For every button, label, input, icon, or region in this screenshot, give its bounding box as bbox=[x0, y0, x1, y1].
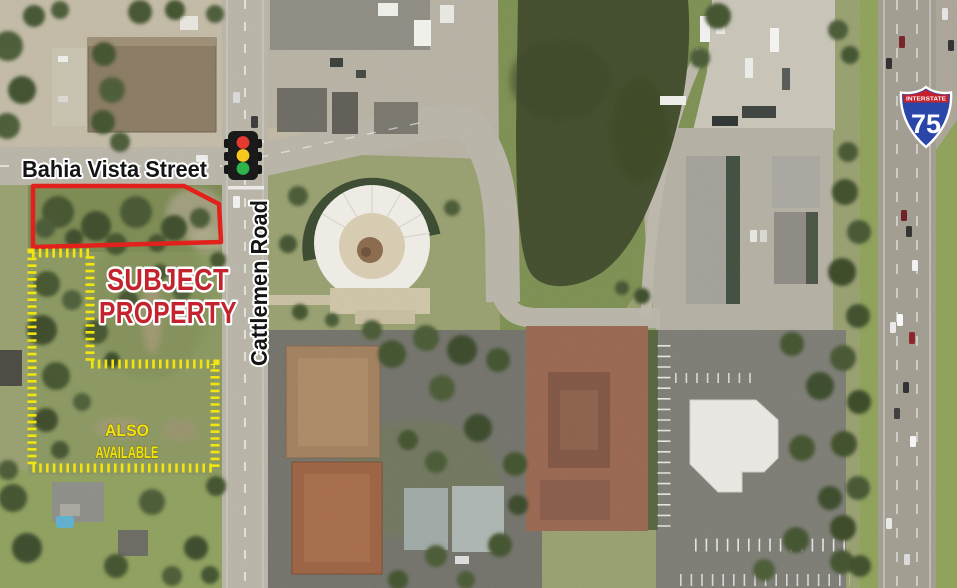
interstate-route-number: 75 bbox=[911, 109, 941, 139]
subject-property-label-line2: PROPERTY bbox=[99, 295, 237, 330]
also-available-label-line1: ALSO bbox=[105, 421, 149, 440]
green-light bbox=[237, 162, 250, 175]
interstate-banner-text: INTERSTATE bbox=[906, 96, 946, 102]
subject-property-label: SUBJECT PROPERTY bbox=[99, 262, 237, 330]
subject-property-label-line1: SUBJECT bbox=[107, 262, 229, 297]
yellow-light bbox=[237, 149, 250, 162]
traffic-light-icon bbox=[224, 131, 262, 180]
bahia-vista-street-label: Bahia Vista Street bbox=[22, 156, 207, 182]
red-light bbox=[237, 136, 250, 149]
cattlemen-road-label: Cattlemen Road bbox=[246, 200, 272, 366]
aerial-property-map: Bahia Vista Street Cattlemen Road SUBJEC… bbox=[0, 0, 957, 588]
also-available-label-line2: AVAILABLE bbox=[96, 443, 159, 462]
satellite-image: Bahia Vista Street Cattlemen Road SUBJEC… bbox=[0, 0, 957, 588]
